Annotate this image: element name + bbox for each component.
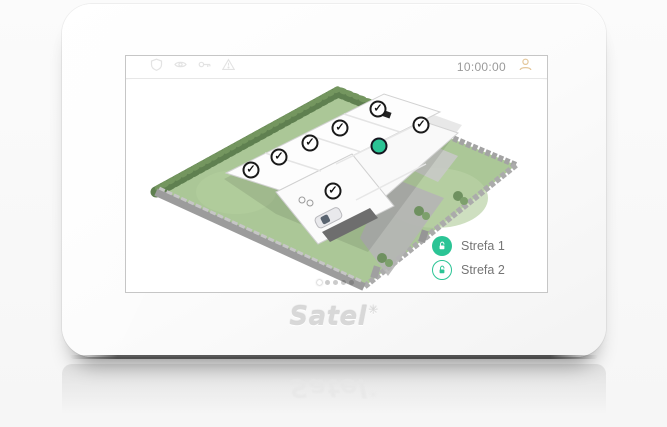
product-photo-stage: 10:00:00	[0, 0, 667, 427]
partition-row-strefa-2[interactable]: Strefa 2	[432, 260, 505, 280]
page-dot-2[interactable]	[325, 280, 330, 285]
status-bar: 10:00:00	[126, 56, 547, 79]
trouble-warning-icon	[222, 58, 235, 76]
shield-icon	[150, 58, 163, 76]
unlocked-padlock-icon	[432, 260, 452, 280]
sensor-ok-badge[interactable]: ✓	[325, 183, 342, 200]
sensor-ok-badge[interactable]: ✓	[243, 162, 260, 179]
logo-star-mark: ✳	[368, 303, 379, 317]
satel-touch-panel-device: 10:00:00	[62, 4, 606, 357]
partition-label: Strefa 1	[452, 239, 505, 253]
sensor-ok-badge[interactable]: ✓	[370, 101, 387, 118]
satel-logo-reflection: Satel✳	[289, 372, 378, 402]
partition-row-strefa-1[interactable]: Strefa 1	[432, 236, 505, 256]
home-map-view: ✓✓✓✓✓✓✓ Strefa 1	[126, 80, 547, 292]
page-dot-3[interactable]	[333, 280, 338, 285]
unlocked-padlock-icon	[432, 236, 452, 256]
key-icon	[198, 58, 211, 76]
bypass-eye-icon	[174, 58, 187, 76]
clock: 10:00:00	[457, 60, 506, 74]
page-dot-5[interactable]	[349, 280, 354, 285]
status-indicator-icons	[150, 58, 235, 76]
active-sensor-dot[interactable]	[371, 138, 388, 155]
user-icon[interactable]	[518, 57, 533, 77]
page-dot-1[interactable]	[317, 280, 322, 285]
page-dot-4[interactable]	[341, 280, 346, 285]
sensor-ok-badge[interactable]: ✓	[413, 117, 430, 134]
satel-logo: Satel✳	[289, 302, 378, 332]
partition-label: Strefa 2	[452, 263, 505, 277]
device-reflection: Satel✳	[62, 364, 606, 427]
touchscreen: 10:00:00	[125, 55, 548, 293]
sensor-ok-badge[interactable]: ✓	[271, 149, 288, 166]
sensor-ok-badge[interactable]: ✓	[302, 135, 319, 152]
page-indicator[interactable]	[317, 280, 354, 285]
sensor-ok-badge[interactable]: ✓	[332, 120, 349, 137]
